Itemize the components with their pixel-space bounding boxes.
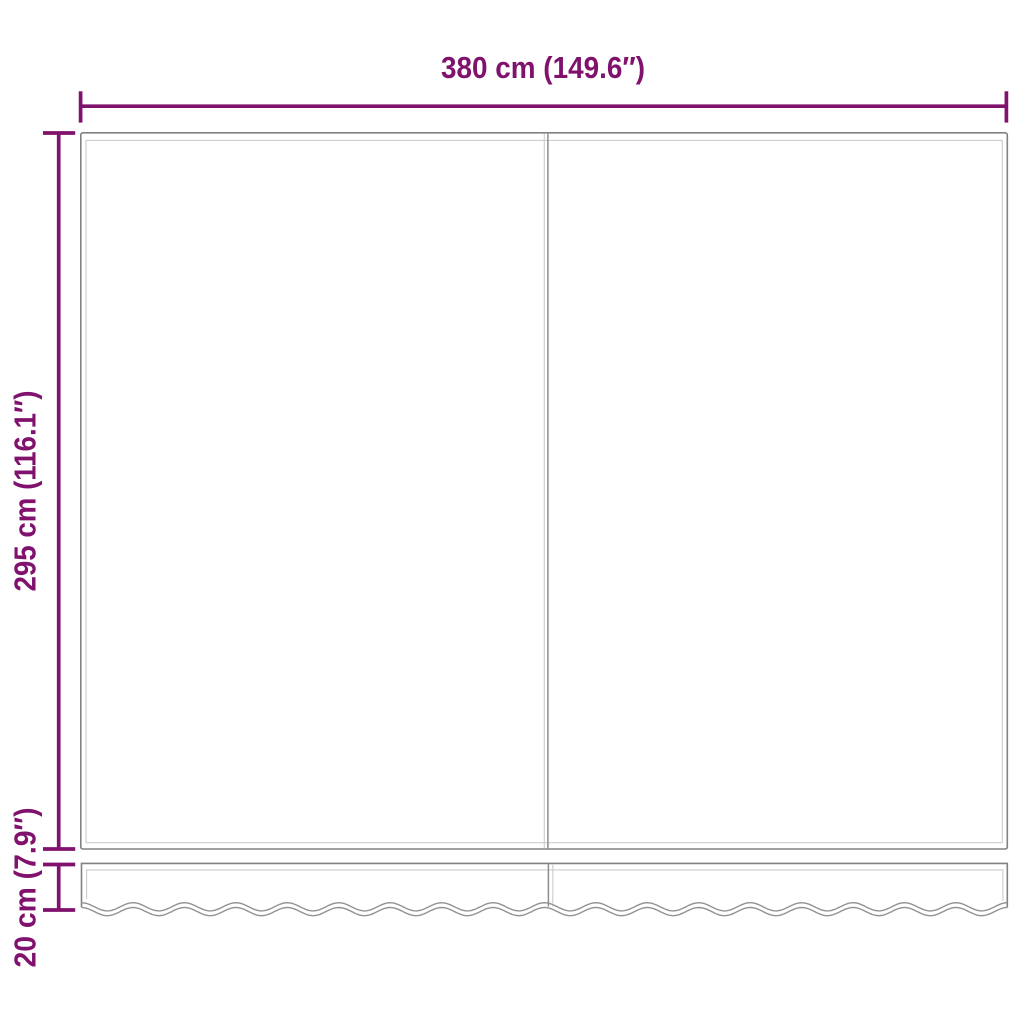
svg-text:20 cm (7.9″): 20 cm (7.9″) (8, 808, 42, 968)
svg-text:295 cm (116.1″): 295 cm (116.1″) (8, 391, 42, 592)
svg-text:380 cm (149.6″): 380 cm (149.6″) (441, 51, 645, 85)
